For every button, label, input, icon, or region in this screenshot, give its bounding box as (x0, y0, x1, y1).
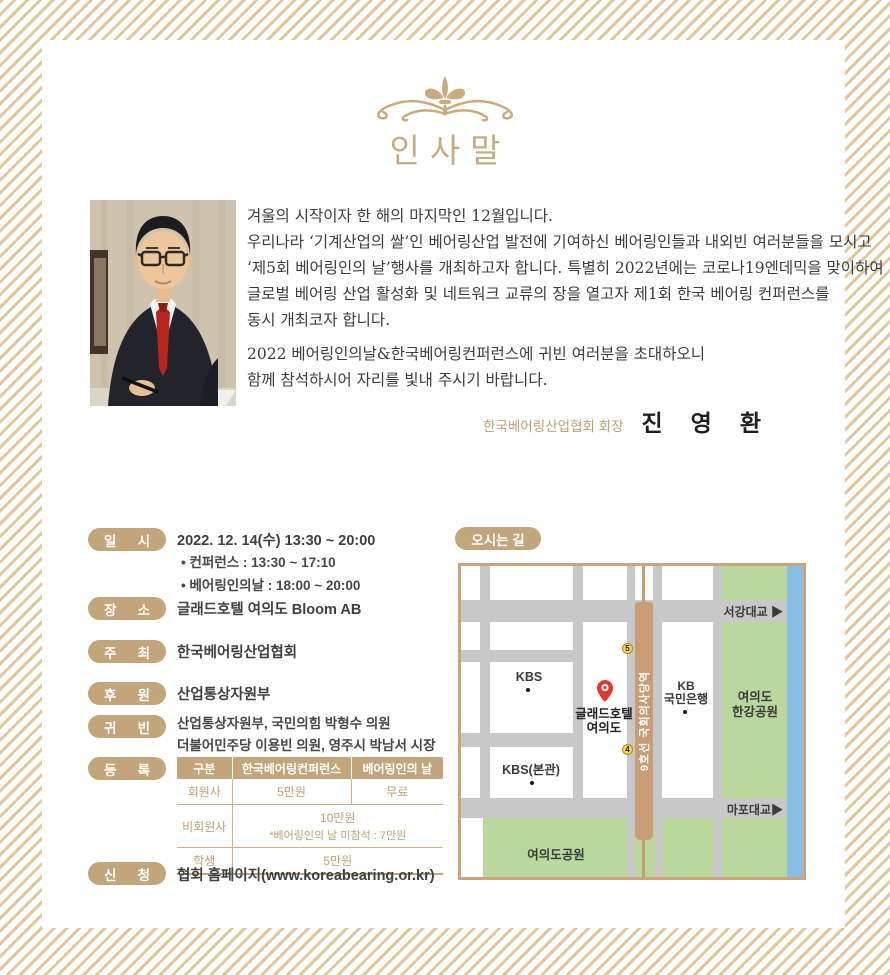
table-header-bearing-day: 베어링인의 날 (351, 757, 443, 779)
badge-char: 최 (138, 642, 150, 662)
han-river (787, 566, 803, 877)
label-yeouido-park: 여의도공원 (501, 848, 611, 862)
venue-value: 글래드호텔 여의도 Bloom AB (177, 598, 361, 619)
label-kbs: KBS (499, 670, 559, 684)
signature-organization: 한국베어링산업협회 회장 (483, 415, 623, 435)
badge-char: 록 (138, 759, 150, 779)
badge-char: 청 (138, 864, 150, 884)
greeting-line: 우리나라 ‘기계산업의 쌀’인 베어링산업 발전에 기여하신 베어링인들과 내외… (247, 229, 884, 255)
fee-amount: 10만원 (320, 811, 355, 825)
badge-char: 주 (104, 642, 116, 662)
vip-line-2: 더불어민주당 이용빈 의원, 영주시 박남서 시장 (177, 734, 435, 754)
badge-registration: 등 록 (88, 757, 166, 780)
hotel-name-line: 글래드호텔 (565, 707, 643, 721)
cell-category: 비회원사 (177, 805, 232, 848)
greeting-line: 2022 베어링인의날&한국베어링컨퍼런스에 귀빈 여러분을 초대하오니 (247, 341, 705, 367)
greeting-paragraph-2: 2022 베어링인의날&한국베어링컨퍼런스에 귀빈 여러분을 초대하오니 함께 … (247, 341, 705, 393)
cell-fee: 10만원 *베어링인의 날 미참석 : 7만원 (232, 805, 443, 848)
badge-char: 신 (104, 864, 116, 884)
badge-char: 귀 (104, 717, 116, 737)
map-road-vertical (627, 818, 635, 877)
hangang-park-line: 한강공원 (724, 705, 786, 720)
label-seogang-bridge: 서강대교 ▶ (697, 605, 787, 619)
hotel-name-line: 여의도 (565, 721, 643, 735)
greeting-paragraph-1: 겨울의 시작이자 한 해의 마지막인 12월입니다. 우리나라 ‘기계산업의 쌀… (247, 203, 884, 333)
badge-char: 후 (104, 684, 116, 704)
cell-fee: 5만원 (232, 779, 351, 805)
apply-value: 협회 홈페이지(www.koreabearing.or.kr) (177, 864, 435, 885)
badge-apply: 신 청 (88, 862, 166, 885)
badge-char: 원 (138, 684, 150, 704)
chairman-photo (90, 200, 236, 406)
table-row-nonmember: 비회원사 10만원 *베어링인의 날 미참석 : 7만원 (177, 805, 443, 848)
badge-vip: 귀 빈 (88, 715, 166, 738)
invitation-page: 인사말 겨울의 시작이자 (0, 0, 890, 975)
fee-note: *베어링인의 날 미참석 : 7만원 (235, 827, 442, 843)
registration-fee-table: 구분 한국베어링컨퍼런스 베어링인의 날 회원사 5만원 무료 비회원사 10만… (177, 757, 443, 875)
table-header-row: 구분 한국베어링컨퍼런스 베어링인의 날 (177, 757, 443, 779)
badge-host: 주 최 (88, 640, 166, 663)
badge-char: 소 (138, 599, 150, 619)
kb-line: 국민은행 (657, 693, 715, 706)
table-row-member: 회원사 5만원 무료 (177, 779, 443, 805)
badge-directions: 오시는 길 (455, 527, 541, 550)
badge-sponsor: 후 원 (88, 682, 166, 705)
badge-venue: 장 소 (88, 597, 166, 620)
page-title: 인사말 (0, 124, 890, 172)
exit-5-badge: 5 (622, 643, 633, 654)
map-road-vertical (713, 818, 722, 877)
exit-4-badge: 4 (622, 744, 633, 755)
badge-char: 등 (104, 759, 116, 779)
table-header-category: 구분 (177, 757, 232, 779)
badge-datetime: 일 시 (88, 528, 166, 551)
signature: 한국베어링산업협회 회장 진 영 환 (483, 404, 767, 438)
datetime-bullet-conference: • 컨퍼런스 : 13:30 ~ 17:10 (181, 551, 336, 571)
badge-char: 시 (138, 530, 150, 550)
fleur-de-lis-ornament-icon (365, 74, 525, 126)
badge-char: 빈 (138, 717, 150, 737)
kb-dot (683, 710, 687, 714)
greeting-line: ‘제5회 베어링인의 날’행사를 개최하고자 합니다. 특별히 2022년에는 … (247, 255, 884, 281)
hotel-pin-icon (596, 679, 614, 703)
label-hangang-park: 여의도 한강공원 (724, 690, 786, 720)
label-kbs-main: KBS(본관) (491, 763, 571, 777)
datetime-bullet-bearing-day: • 베어링인의날 : 18:00 ~ 20:00 (181, 574, 360, 594)
label-kb-bank: KB 국민은행 (657, 680, 715, 706)
directions-map: 9호선 국회의사당역 5 4 서강대교 ▶ 마포대교▶ KBS KBS(본관) … (458, 563, 806, 880)
map-road-stub (461, 733, 573, 747)
host-value: 한국베어링산업협회 (177, 641, 297, 662)
greeting-line: 동시 개최코자 합니다. (247, 307, 884, 333)
kbs-dot (526, 688, 530, 692)
vip-line-1: 산업통상자원부, 국민의힘 박형수 의원 (177, 712, 391, 732)
label-mapo-bridge: 마포대교▶ (697, 803, 787, 817)
table-header-conference: 한국베어링컨퍼런스 (232, 757, 351, 779)
map-road-vertical (655, 818, 663, 877)
cell-fee: 무료 (351, 779, 443, 805)
greeting-line: 글로벌 베어링 산업 활성화 및 네트워크 교류의 장을 열고자 제1회 한국 … (247, 281, 884, 307)
label-hotel: 글래드호텔 여의도 (565, 707, 643, 735)
datetime-value: 2022. 12. 14(수) 13:30 ~ 20:00 (177, 529, 375, 550)
kbs-main-dot (530, 781, 534, 785)
hangang-park-line: 여의도 (724, 690, 786, 705)
greeting-line: 겨울의 시작이자 한 해의 마지막인 12월입니다. (247, 203, 884, 229)
badge-char: 일 (104, 530, 116, 550)
sponsor-value: 산업통상자원부 (177, 683, 270, 704)
signature-name: 진 영 환 (642, 404, 768, 438)
greeting-line: 함께 참석하시어 자리를 빛내 주시기 바랍니다. (247, 367, 705, 393)
cell-category: 회원사 (177, 779, 232, 805)
map-road-stub (461, 650, 573, 662)
badge-char: 장 (104, 599, 116, 619)
